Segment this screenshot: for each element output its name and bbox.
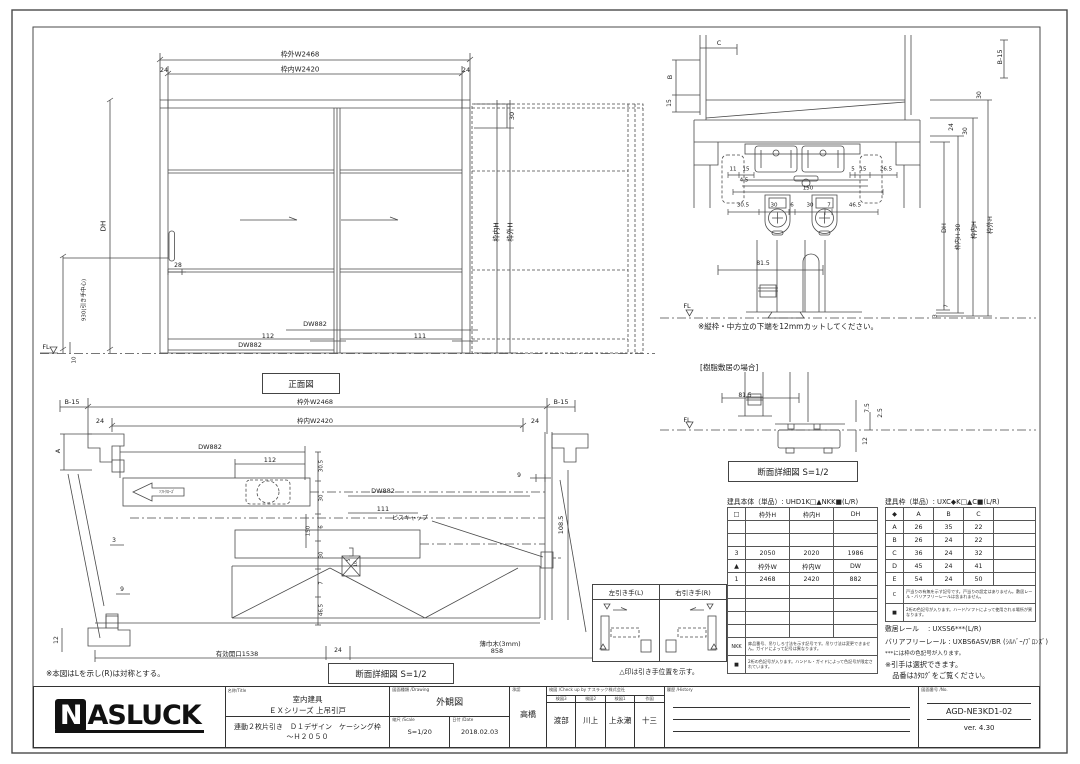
table-cell [834,599,878,612]
table-note-row: NKK扉品番号、吊りしろ寸法を示す記号です。吊り寸法は変更できません。ガイドによ… [728,638,878,656]
check-up-cell: 検図 /Check up by ナスラック株式会社 検図3渡部検図2川上検図1上… [547,687,665,747]
table-row [728,612,878,625]
logo-n-icon: N [55,699,87,732]
table-row: 124682420882 [728,573,878,586]
table-cell [834,625,878,638]
resin-case-label: [樹脂敷居の場合] [700,362,758,373]
table-cell [746,521,790,534]
table-note-row: ■2桁の色記号が入ります。ハード/ソフトによって使用される場所が異なります。 [886,604,1036,622]
table-cell [834,612,878,625]
table-cell: 26 [904,534,934,547]
table-cell [994,560,1036,573]
table-cell: 45 [904,560,934,573]
table-header-cell: C [964,508,994,521]
table-header-cell: A [904,508,934,521]
table-cell: 24 [934,573,964,586]
table-header-cell: □ [728,508,746,521]
table-cell: 24 [934,560,964,573]
product-height: ～Ｈ２０５０ [286,732,328,742]
rail-color-note: ***には枠の色記号が入ります。 [885,649,964,657]
table-cell: 2050 [746,547,790,560]
table-cell [994,534,1036,547]
table-cell [746,599,790,612]
table-cell [834,586,878,599]
note-text-cell: 2桁の色記号が入ります。ハード/ソフトによって使用される場所が異なります。 [904,604,1036,622]
table-cell [746,534,790,547]
check-sub-label: 検図1 [606,696,634,703]
table-header-cell: 枠内H [790,508,834,521]
product-category: 室内建具 [292,694,322,705]
product-spec: 連動２枚片引き Ｄ１デザイン ケーシング枠 [234,722,381,732]
table-cell [790,534,834,547]
table-cell: 24 [934,547,964,560]
table-cell [790,521,834,534]
table-cell: A [886,521,904,534]
table-cell: 882 [834,573,878,586]
check-sub-label: 検図2 [576,696,604,703]
approver-name: 高橋 [510,709,546,720]
right-handle-label: 右引き手(R) [660,585,726,599]
note-text-cell: 戸当りの有無を示す記号です。戸当りの設定はありません。敷居レール・バリアフリーレ… [904,586,1036,604]
table-row: ▲枠外W枠内WDW [728,560,878,573]
table-row: ◆ABC [886,508,1036,521]
door-frame-table-wrap: 建具枠（単品）: UXC◆K□▲C■(L/R) ◆ABCA263522B2624… [885,496,1036,622]
section-view-title: 断面詳細図 S=1/2 [728,461,858,482]
table-cell: 32 [964,547,994,560]
table-cell: 2468 [746,573,790,586]
number-label: 図面番号 /No. [919,687,1039,693]
table-cell [728,521,746,534]
plan-view-geometry [60,398,640,662]
table-cell [790,612,834,625]
table-cell [994,573,1036,586]
door-frame-table-title: 建具枠（単品）: UXC◆K□▲C■(L/R) [885,496,1036,506]
table-cell [834,534,878,547]
table-cell: DW [834,560,878,573]
door-body-table-wrap: 建具本体（単品）: UHD1K□▲NKK■(L/R) □枠外H枠内HDH3205… [727,496,878,674]
note-symbol-cell: NKK [728,638,746,656]
mirror-note: ※本図はLを示し(R)は対称とする。 [46,668,165,679]
drawing-type: 外観図 [390,695,509,708]
check-sub-value: 十三 [635,715,663,726]
table-cell: 22 [964,534,994,547]
drawing-type-cell: 図面種類 /Drawing 外観図 縮尺 /Scale S=1/20 日付 /D… [390,687,510,747]
door-frame-table: ◆ABCA263522B262422C362432D452441E542450C… [885,507,1036,622]
table-row: C362432 [886,547,1036,560]
history-cell: 履歴 /History [665,687,920,747]
table-cell: 22 [964,521,994,534]
table-row: D452441 [886,560,1036,573]
table-cell [790,599,834,612]
table-cell: 枠内W [790,560,834,573]
check-label: 検図 /Check up by ナスラック株式会社 [547,687,664,696]
check-sub-value: 渡部 [547,715,575,726]
table-row [728,625,878,638]
table-cell: 2420 [790,573,834,586]
table-cell [746,612,790,625]
table-cell [790,625,834,638]
handle-selection-box: 左引き手(L) 右引き手(R) [592,584,727,662]
plan-view-title: 断面詳細図 S=1/2 [328,663,454,684]
handle-diagrams [593,600,724,661]
table-cell: 1986 [834,547,878,560]
table-cell [834,521,878,534]
title-block: NASLUCK 名称/Title 室内建具 ＥＸシリーズ 上吊引戸 連動２枚片引… [33,686,1040,748]
table-cell: 2020 [790,547,834,560]
table-cell: 1 [728,573,746,586]
scale-value: S=1/20 [390,728,449,736]
check-sub-cell: 検図3渡部 [547,696,576,748]
table-row: A263522 [886,521,1036,534]
barrier-free-rail-info: バリアフリーレール : UXBS6ASV/BR (ｼﾙﾊﾞｰ/ﾌﾞﾛﾝｽﾞ) [885,636,1048,646]
history-line [673,731,911,732]
table-header-cell: B [934,508,964,521]
company-logo: NASLUCK [34,687,226,747]
table-cell: 26 [904,521,934,534]
handle-choice-note: ※引手は選択できます。 [885,660,962,670]
check-sub-label: 作図 [635,696,663,703]
table-header-cell [994,508,1036,521]
section-view-geometry [660,35,1036,453]
drawing-sheet: 枠外W2468枠内W2420242430DH930(引き手中心)28DW8821… [0,0,1080,764]
table-cell [790,586,834,599]
table-cell [746,586,790,599]
date-value: 2018.02.03 [450,728,509,736]
note-symbol-cell: C [886,586,904,604]
table-note-row: C戸当りの有無を示す記号です。戸当りの設定はありません。敷居レール・バリアフリー… [886,586,1036,604]
table-cell [994,547,1036,560]
table-cell: 41 [964,560,994,573]
history-label: 履歴 /History [665,687,919,693]
table-header-cell: 枠外H [746,508,790,521]
note-symbol-cell: ■ [728,656,746,674]
table-row: □枠外H枠内HDH [728,508,878,521]
table-cell: C [886,547,904,560]
table-row [728,534,878,547]
table-cell [746,625,790,638]
approver-cell: 承認 高橋 [510,687,547,747]
table-cell: E [886,573,904,586]
table-cell [728,625,746,638]
table-cell: 35 [934,521,964,534]
check-sub-cell: 検図2川上 [576,696,605,748]
table-header-cell: DH [834,508,878,521]
note-symbol-cell: ■ [886,604,904,622]
table-cell [728,599,746,612]
table-row [728,521,878,534]
table-cell: 枠外W [746,560,790,573]
approver-label: 承認 [510,687,546,693]
note-text-cell: 2桁の色記号が入ります。ハンドル・ガイドによって色記号が限定されています。 [746,656,878,674]
drawing-title-cell: 名称/Title 室内建具 ＥＸシリーズ 上吊引戸 連動２枚片引き Ｄ１デザイン… [226,687,391,747]
table-cell: 54 [904,573,934,586]
drawing-version: ver. 4.30 [919,724,1039,732]
check-sub-cell: 検図1上永瀬 [606,696,635,748]
check-sub-value: 川上 [576,715,604,726]
catalog-note: 品番はｶﾀﾛｸﾞをご覧ください。 [885,671,989,681]
handle-position-note: △印は引き手位置を示す。 [596,666,722,676]
table-cell: 36 [904,547,934,560]
note-text-cell: 扉品番号、吊りしろ寸法を示す記号です。吊り寸法は変更できません。ガイドによって記… [746,638,878,656]
table-cell: ▲ [728,560,746,573]
product-series: ＥＸシリーズ 上吊引戸 [269,705,346,716]
table-cell: B [886,534,904,547]
front-view-title: 正面図 [262,373,340,394]
table-cell: D [886,560,904,573]
front-view-geometry [40,53,655,354]
table-header-cell: ◆ [886,508,904,521]
table-cell [728,612,746,625]
logo-text: ASLUCK [87,700,200,731]
table-row [728,586,878,599]
table-row: B262422 [886,534,1036,547]
table-row: 3205020201986 [728,547,878,560]
table-row [728,599,878,612]
door-body-table: □枠外H枠内HDH3205020201986▲枠外W枠内WDW124682420… [727,507,878,674]
cut-note: ※縦枠・中方立の下端を12mmカットしてください。 [698,321,878,332]
table-cell: 24 [934,534,964,547]
name-label: 名称/Title [226,688,247,694]
table-cell [728,534,746,547]
table-cell [728,586,746,599]
drawing-number-cell: 図面番号 /No. AGD-NE3KD1-02 ver. 4.30 [919,687,1039,747]
left-handle-label: 左引き手(L) [593,585,660,599]
drawing-type-label: 図面種類 /Drawing [390,687,509,693]
history-line [673,719,911,720]
table-cell [994,521,1036,534]
drawing-number: AGD-NE3KD1-02 [927,703,1031,720]
scale-label: 縮尺 /Scale [390,717,449,723]
check-sub-label: 検図3 [547,696,575,703]
check-sub-cell: 作図十三 [635,696,663,748]
history-line [673,707,911,708]
sill-rail-info: 敷居レール : UXSS6***(L/R) [885,623,981,633]
door-body-table-title: 建具本体（単品）: UHD1K□▲NKK■(L/R) [727,496,878,506]
table-cell: 3 [728,547,746,560]
table-row: E542450 [886,573,1036,586]
check-sub-value: 上永瀬 [606,715,634,726]
table-note-row: ■2桁の色記号が入ります。ハンドル・ガイドによって色記号が限定されています。 [728,656,878,674]
table-cell: 50 [964,573,994,586]
date-label: 日付 /Date [450,717,509,723]
